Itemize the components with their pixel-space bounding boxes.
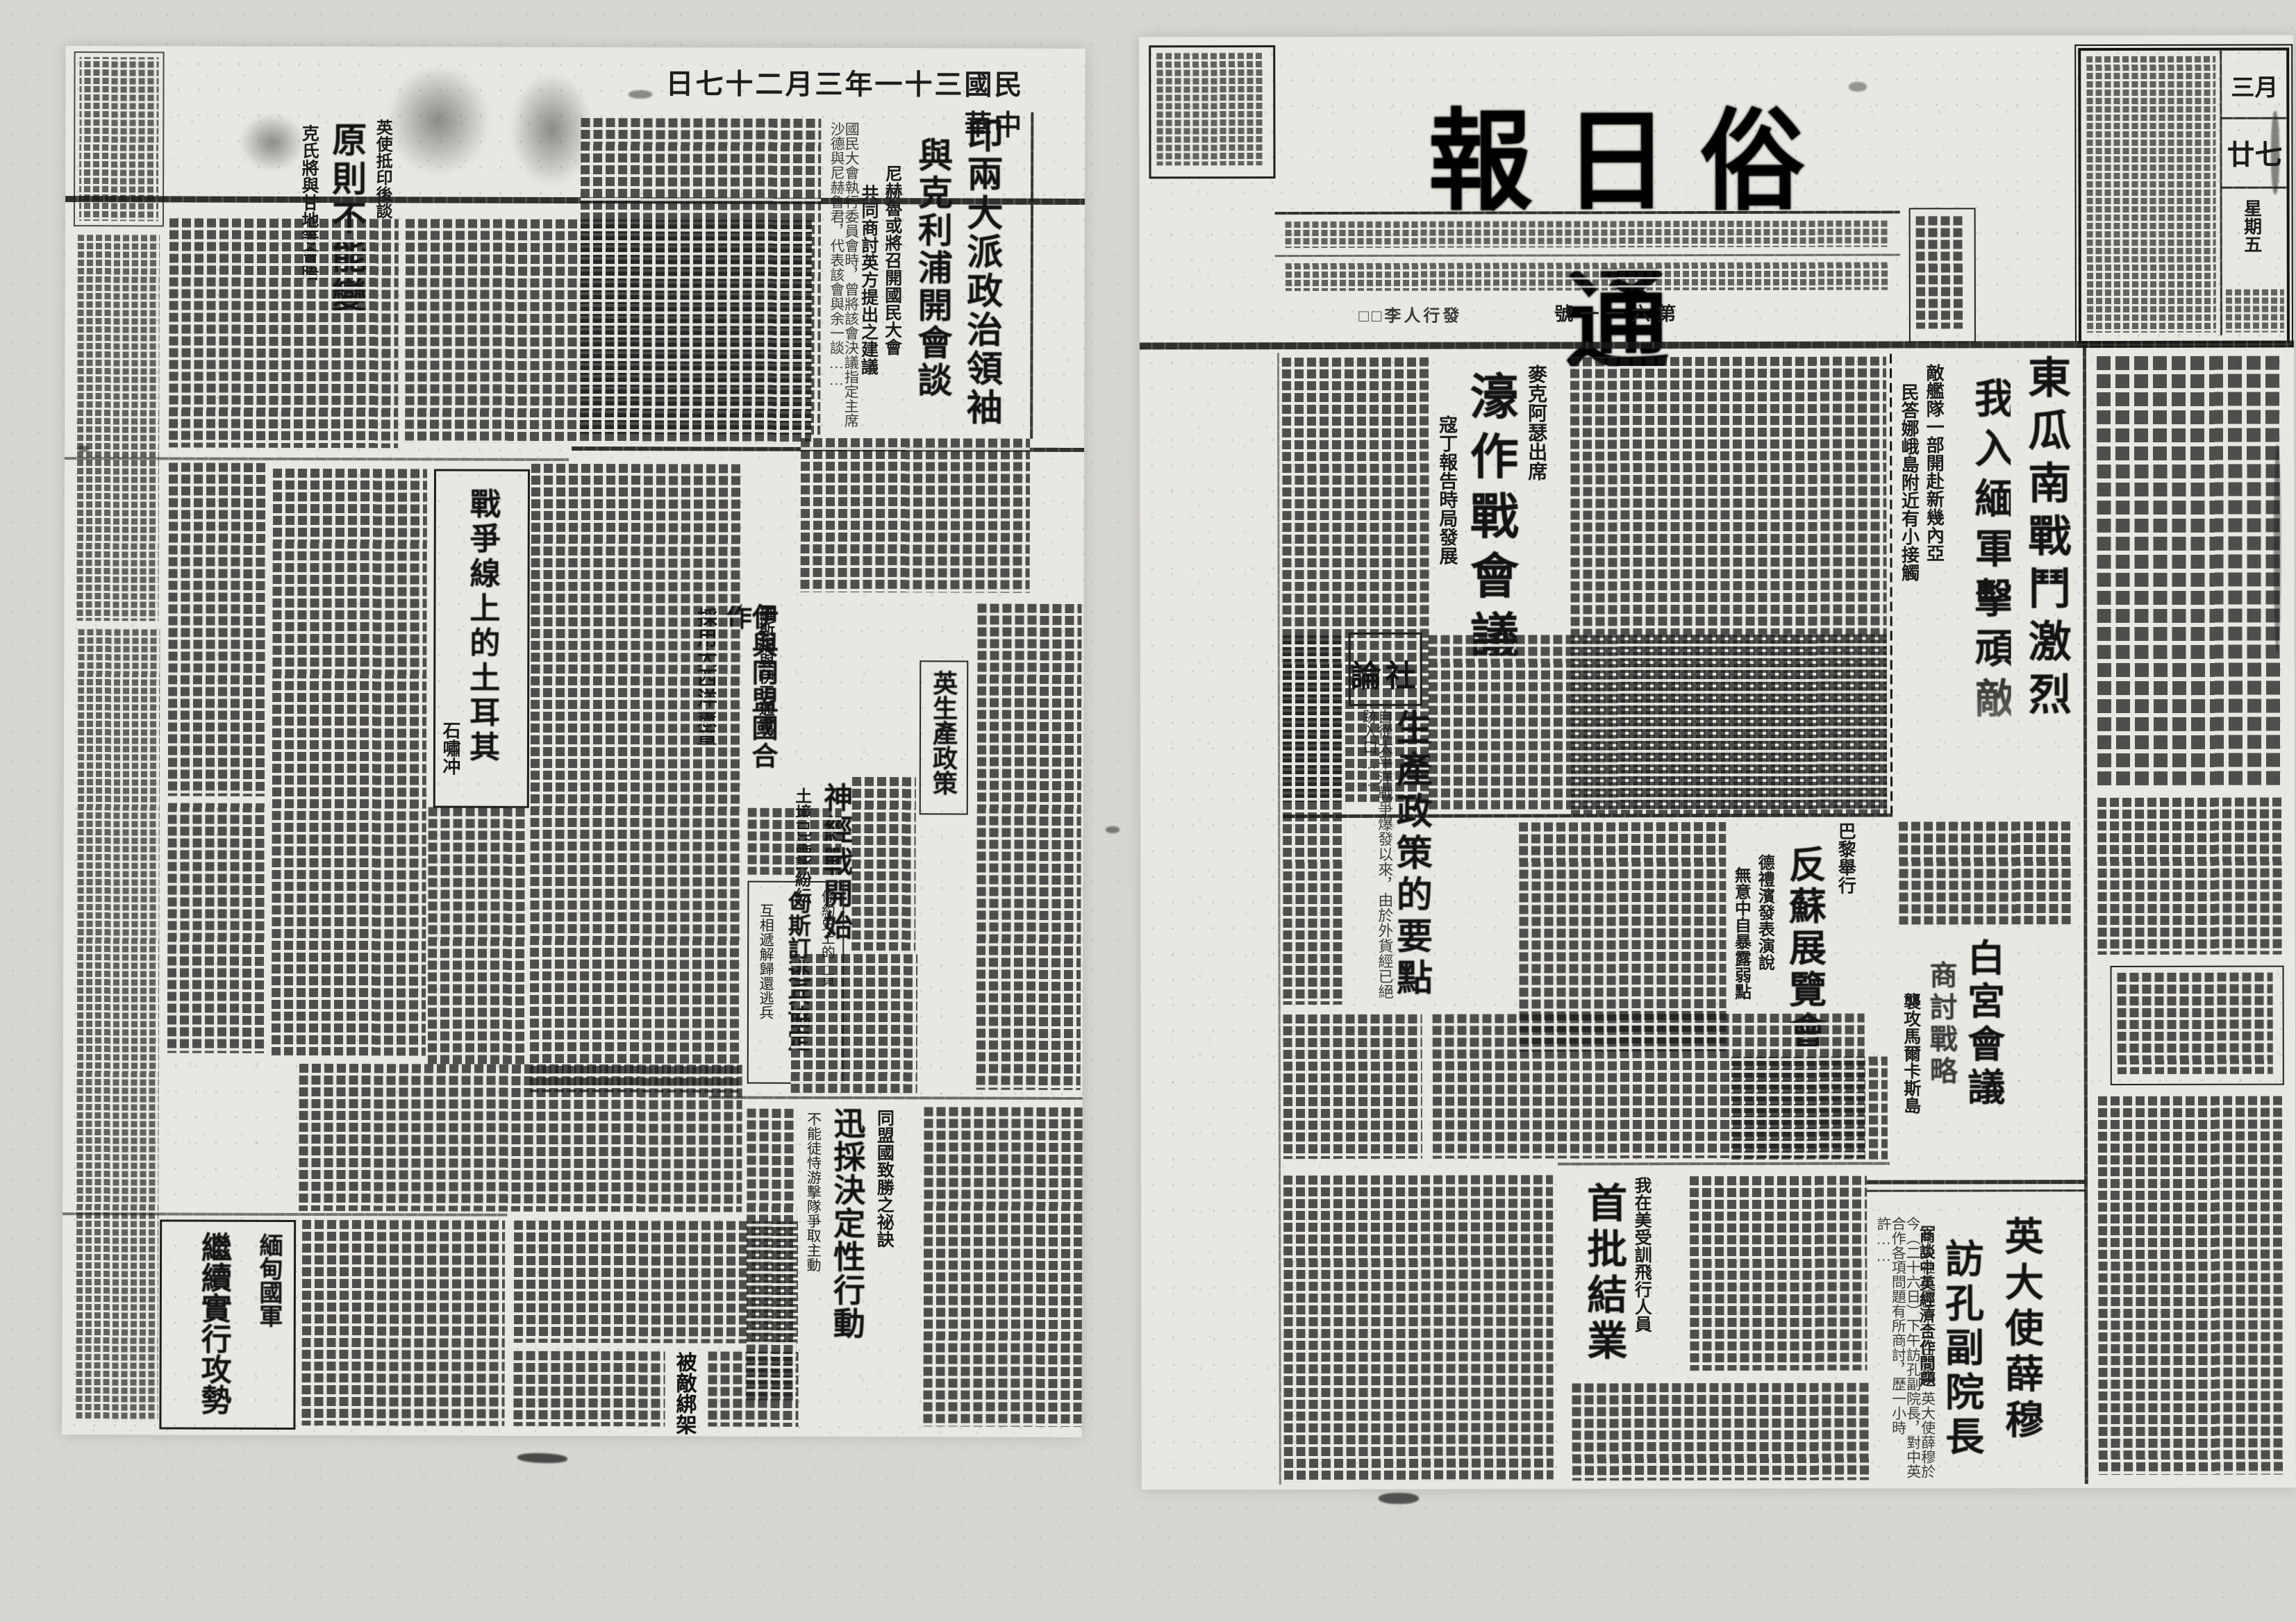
kicker-paris: 巴黎舉行: [1836, 822, 1854, 916]
headline-ambassador-line1: 英大使薛穆: [2001, 1216, 2040, 1481]
scan-artifact: [1379, 1493, 1419, 1504]
publisher-line: □□李人行發: [1313, 302, 1508, 326]
headline-kidnapped: 被敵綁架: [673, 1351, 694, 1447]
subhead-paris-1: 德禮濱發表演說: [1756, 854, 1772, 1036]
masthead-divider: [2220, 51, 2222, 335]
section-rule: [1283, 814, 1892, 819]
text-block: [169, 218, 399, 448]
text-block: [1283, 1014, 1422, 1159]
editorial-label: 論社: [1351, 651, 1420, 696]
text-block: [1572, 1383, 1871, 1481]
masthead-row: [1286, 262, 1890, 292]
calendar-weekday: 星期五: [2243, 199, 2261, 283]
section-rule: [1867, 1189, 2086, 1192]
text-block: [851, 777, 916, 951]
headline-burma-box: 緬甸國軍 繼續實行攻勢: [159, 1219, 296, 1430]
text-block: [1433, 1014, 1865, 1159]
text-block: [301, 1220, 505, 1426]
scan-artifact: [78, 446, 89, 452]
headline-ambassador-line2: 訪孔副院長: [1941, 1238, 1981, 1488]
notice-box: [1909, 208, 1976, 342]
ink-smudge: [239, 113, 305, 172]
calendar-month: 三月: [2224, 69, 2285, 103]
feature-turkey-box: 戰爭線上的土耳其 石嘯冲: [433, 469, 530, 808]
newspaper-scan: 日七十二月三年一十三國民華中 印兩大派政治領袖 與克利浦開會談 尼赫魯或將召開國…: [0, 0, 2296, 1622]
headline-burma-line2: 繼續實行攻勢: [197, 1232, 228, 1418]
kicker-australia: 麥克阿瑟出席: [1526, 364, 1545, 492]
text-block: [923, 1107, 1082, 1427]
headline-cripps-line1: 印兩大派政治領袖: [962, 116, 999, 430]
left-corner-ad-box: [1149, 45, 1275, 178]
headline-burma-battle-line1: 東瓜南戰鬥激烈: [2023, 355, 2067, 813]
headline-burma-battle-line2: 我入緬軍擊頑敵: [1970, 377, 2011, 828]
scan-artifact: [1106, 826, 1120, 833]
column-rule: [1277, 353, 1281, 1485]
text-block: [168, 462, 266, 796]
editorial-lede: 自從太平洋戰爭爆發以來，由於外貨經已絕跡入口……: [1361, 709, 1392, 1009]
text-block: [791, 954, 918, 1093]
masthead-note: [2226, 290, 2284, 333]
text-block: [2097, 798, 2283, 955]
notice-text: [1916, 216, 1963, 328]
section-rule: [1558, 1162, 1890, 1166]
scan-artifact: [2274, 444, 2281, 653]
text-block: [801, 438, 1031, 593]
masthead-title: 報日俗通: [1389, 72, 1875, 220]
text-block: [976, 604, 1082, 1090]
kicker-white-house: 襲攻馬爾卡斯島: [1902, 992, 1920, 1178]
ad-text: [1156, 53, 1263, 165]
text-block: [167, 803, 265, 1053]
text-block: [76, 629, 160, 1421]
text-block: [272, 469, 427, 1056]
text-block: [1283, 1175, 1554, 1481]
text-block: [2118, 973, 2273, 1074]
subhead-burma-battle-1: 敵艦隊一部開赴新幾內亞: [1924, 363, 1943, 808]
text-block: [1690, 1176, 1867, 1371]
text-block: [2097, 356, 2283, 785]
right-page: 三月 廿七 星期五 報日俗通 號一一六第 □□李人行發 東瓜南戰鬥激烈 我入緬軍…: [1139, 35, 2296, 1490]
text-block: [1283, 635, 1346, 1005]
dateline: 日七十二月三年一十三國民華中: [663, 61, 1024, 99]
section-rule: [709, 1096, 1083, 1100]
masthead-row: [1286, 221, 1890, 249]
headline-white-house-line2: 商討戰略: [1927, 960, 1954, 1123]
text-block: [747, 808, 841, 875]
subhead-cripps-1: 尼赫魯或將召開國民大會: [883, 165, 901, 421]
masthead-info-box: 三月 廿七 星期五: [2078, 48, 2290, 344]
headline-burma-line1: 緬甸國軍: [256, 1233, 280, 1358]
headline-cripps-line2: 與克利浦開會談: [915, 137, 950, 421]
text-block: [530, 464, 741, 1093]
text-block: [299, 1064, 742, 1212]
column-rule: [1030, 112, 1033, 439]
text-block: [1899, 821, 2072, 924]
feature-turkey-author: 石嘯冲: [441, 721, 459, 798]
issue-number: 號一一六第: [1529, 299, 1709, 326]
main-rule: [1140, 341, 2294, 350]
ink-smudge: [386, 65, 490, 176]
text-block: [513, 1351, 665, 1427]
headline-allied: 迅採決定性行動: [831, 1107, 863, 1346]
masthead-price-table: [2086, 56, 2216, 333]
headline-uk-production: 英生產政策: [931, 670, 956, 806]
text-block: [405, 219, 812, 444]
headline-white-house-line1: 白宮會議: [1963, 938, 2001, 1127]
feature-turkey-title: 戰爭線上的土耳其: [466, 488, 497, 780]
boxed-item: [2111, 966, 2284, 1085]
headline-pilots: 首批結業: [1583, 1182, 1623, 1378]
text-block: [1429, 635, 1887, 810]
kicker-pilots: 我在美受訓飛行人員: [1633, 1176, 1650, 1358]
kicker-allied: 同盟國致勝之祕訣: [875, 1109, 893, 1286]
wavy-rule: [1890, 354, 1892, 814]
lede-cripps: 國民大會執行委員會時，曾將該會決議指定主席沙德與尼赫魯君，代表該會與余一談……: [829, 122, 858, 438]
text-block: [76, 235, 159, 621]
text-block: [747, 1109, 797, 1401]
scan-artifact: [1849, 82, 1867, 92]
text-block: [428, 807, 527, 1064]
editorial-label-box: 論社: [1349, 633, 1422, 706]
lede-ambassador: 【中央社重慶二十六日電】英大使薛穆於今（二十六日）下午訪孔副院長，對中英合作各項…: [1876, 1216, 1935, 1481]
subhead-cripps-2: 共同商討英方提出之建議: [859, 184, 877, 441]
editorial-title: 生產政策的要點: [1392, 709, 1429, 1009]
scan-artifact: [629, 90, 652, 99]
subhead-deserters: 互相遞解歸還逃兵: [758, 903, 774, 1063]
text-block: [2098, 1096, 2285, 1475]
scan-artifact: [2271, 111, 2279, 194]
left-page: 日七十二月三年一十三國民華中 印兩大派政治領袖 與克利浦開會談 尼赫魯或將召開國…: [62, 46, 1085, 1437]
scan-artifact: [517, 1453, 567, 1464]
subhead-burma-battle-2: 民答娜峨島附近有小接觸: [1899, 383, 1918, 820]
headline-uk-production-box: 英生產政策: [920, 660, 969, 814]
column-rule: [2083, 345, 2088, 1484]
section-rule: [1867, 1180, 2086, 1185]
subhead-allied: 不能徒恃游擊隊爭取主動: [806, 1112, 821, 1327]
